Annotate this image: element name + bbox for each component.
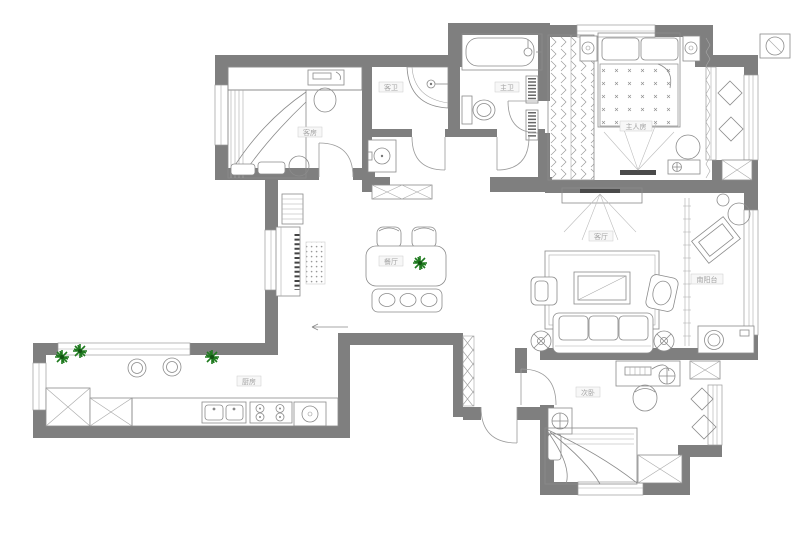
table-plant: [413, 256, 427, 270]
window: [744, 75, 758, 160]
refrigerator: [46, 388, 90, 426]
dining-bench: [372, 289, 442, 312]
room-label-dining: 餐厅: [384, 257, 398, 266]
window: [744, 210, 758, 335]
room-label-master-bedroom: 主人房: [626, 122, 647, 131]
coffee-table: [574, 272, 630, 304]
side-cabinet: [668, 160, 700, 174]
window: [215, 85, 228, 145]
interior-door: [412, 137, 445, 170]
master-bedroom: [548, 33, 710, 180]
kitchen-stool: [128, 359, 146, 377]
washing-machine: [698, 326, 754, 353]
entry-hallway: [276, 194, 325, 296]
outdoor-ac-unit: [760, 34, 790, 58]
plant: [205, 350, 219, 364]
diamond-tile: [719, 117, 743, 141]
south-balcony: [683, 194, 754, 353]
cabinet: [90, 398, 132, 426]
wash-basin: [368, 140, 396, 172]
sliding-door: [683, 198, 691, 346]
air-conditioner: [722, 160, 752, 180]
interior-door: [319, 143, 353, 177]
master-bathroom: [462, 34, 542, 170]
sideboard: [372, 185, 432, 199]
plant: [73, 344, 87, 358]
entry-door: [481, 407, 517, 443]
vanity-stool: [314, 88, 336, 112]
pillow: [602, 38, 639, 60]
floor-lamp: [531, 331, 551, 351]
room-label-guest-bathroom: 客卫: [384, 83, 398, 92]
nightstand: [683, 36, 700, 61]
bath-faucet: [524, 48, 532, 56]
dining-table: [366, 246, 446, 286]
towel-radiator: [526, 76, 538, 140]
living-room: [531, 188, 679, 353]
dining-chair: [412, 227, 436, 248]
tv-master: [604, 124, 674, 175]
armchair: [531, 277, 557, 305]
piano: [276, 227, 300, 296]
room-label-living: 客厅: [594, 232, 608, 241]
table-lamp: [717, 194, 729, 206]
wardrobe: [638, 455, 682, 483]
floor-lamp: [654, 331, 674, 351]
nightstand: [580, 36, 597, 61]
air-conditioner: [548, 408, 572, 434]
dressing-table: [308, 70, 344, 112]
round-chair: [676, 135, 700, 159]
dishwasher: [294, 402, 326, 426]
single-bed: [545, 428, 637, 484]
room-label-master-bathroom: 主卫: [500, 83, 514, 92]
pillow: [641, 38, 678, 60]
shoe-cabinet: [282, 194, 303, 224]
room-label-guest-bedroom: 客房: [303, 128, 317, 137]
room-label-south-balcony: 南阳台: [697, 275, 718, 284]
floor-plan-canvas: 客房 客卫 主卫 主人房 餐厅 客厅 南阳台 厨房 次卧: [0, 0, 800, 540]
bathtub: [462, 34, 542, 70]
air-conditioner: [690, 361, 720, 379]
pillow: [548, 434, 561, 460]
kitchen: [46, 344, 338, 426]
gas-stove: [250, 402, 292, 423]
sofa: [553, 313, 653, 353]
guest-bedroom: [228, 67, 362, 178]
kitchen-stool: [163, 358, 181, 376]
desk-chair: [633, 385, 657, 411]
kitchen-sink: [202, 402, 246, 423]
diamond-tile: [718, 81, 742, 105]
interior-door: [497, 137, 529, 170]
corner-shower: [407, 67, 448, 108]
toilet: [462, 96, 495, 124]
window: [708, 385, 722, 445]
interior-door: [521, 369, 556, 405]
floor-plan-drawing: 客房 客卫 主卫 主人房 餐厅 客厅 南阳台 厨房 次卧: [0, 0, 800, 540]
lattice-screen: [463, 336, 474, 406]
dining-chair: [377, 227, 401, 248]
guest-bed: [228, 90, 306, 178]
plant: [55, 350, 69, 364]
armchair: [645, 273, 679, 312]
entry-direction-arrow: [312, 324, 348, 330]
room-label-second-bedroom: 次卧: [581, 388, 595, 397]
dining-room: [366, 185, 446, 312]
desk: [616, 361, 680, 386]
balcony-sliding-window: [706, 67, 716, 160]
double-bed: [598, 33, 680, 127]
room-label-kitchen: 厨房: [242, 377, 256, 386]
dot-rug: [306, 242, 325, 284]
window: [33, 363, 46, 410]
ceiling-fan-symbol: [659, 368, 675, 384]
